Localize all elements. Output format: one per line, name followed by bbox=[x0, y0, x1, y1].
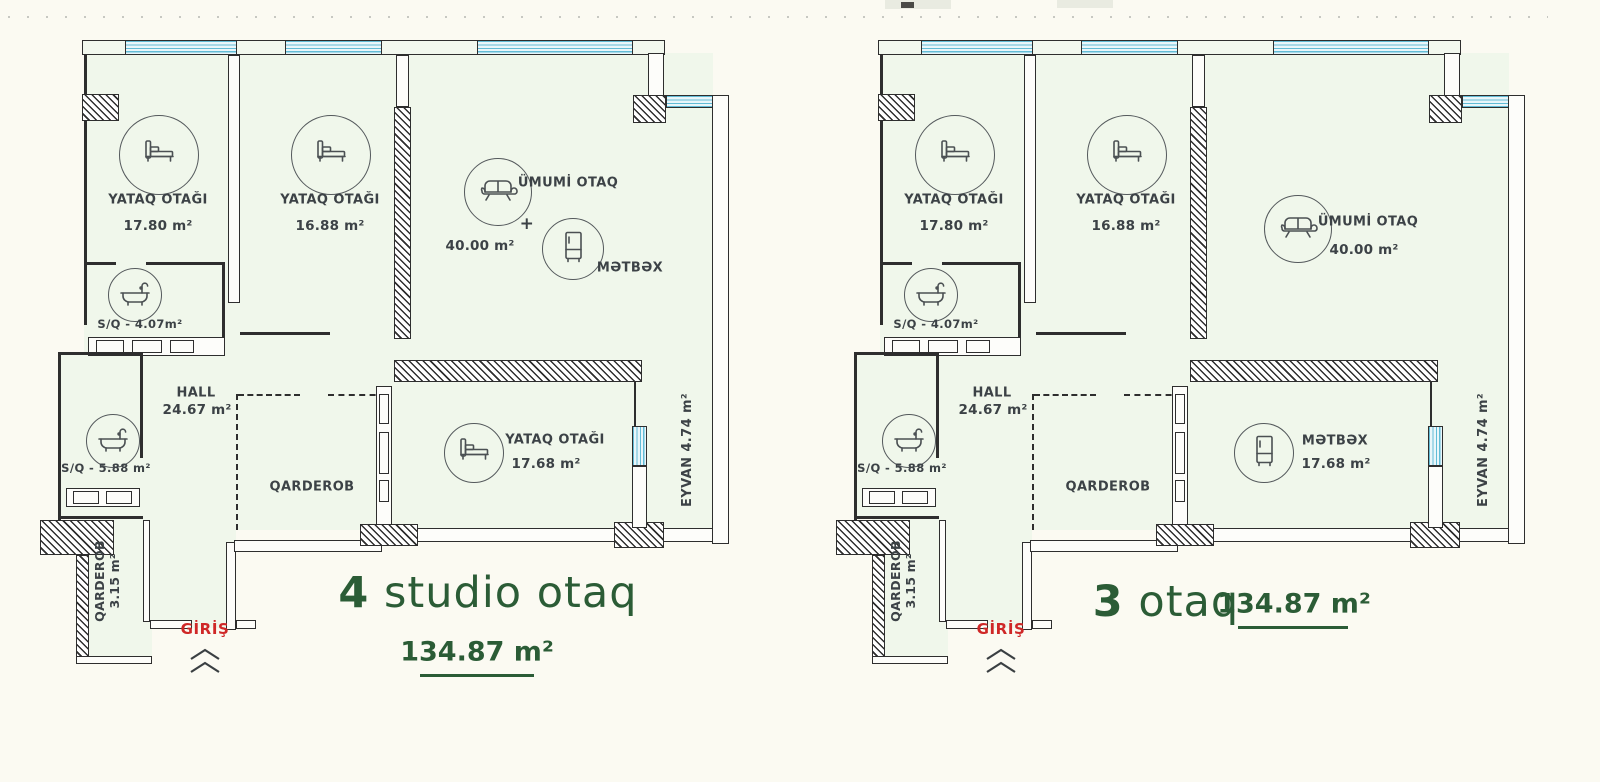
wall-line bbox=[146, 262, 225, 265]
fridge-icon bbox=[1234, 423, 1294, 483]
window bbox=[1428, 426, 1443, 466]
wall bbox=[1428, 466, 1443, 528]
balcony-label: EYVAN 4.74 m² bbox=[1476, 375, 1496, 525]
bath-label: S/Q - 4.07m² bbox=[893, 317, 978, 331]
room-name: YATAQ OTAĞI bbox=[108, 193, 208, 208]
wall-post bbox=[381, 40, 478, 55]
bathtub-icon bbox=[882, 414, 936, 468]
room-name: ÜMUMİ OTAQ bbox=[1318, 215, 1418, 230]
hatched-wall bbox=[82, 94, 119, 121]
room-area: 16.88 m² bbox=[296, 218, 365, 234]
wall-line bbox=[634, 382, 636, 426]
cabinet-drawer bbox=[869, 491, 895, 504]
wall bbox=[1032, 620, 1052, 629]
room-area: 40.00 m² bbox=[1330, 242, 1399, 258]
cabinet-drawer bbox=[928, 340, 958, 353]
hatched-wall bbox=[878, 94, 915, 121]
wall bbox=[396, 55, 409, 107]
room-area: 24.67 m² bbox=[163, 402, 232, 418]
shelf bbox=[379, 394, 389, 424]
room-area: 16.88 m² bbox=[1092, 218, 1161, 234]
balcony-label: EYVAN 4.74 m² bbox=[680, 375, 700, 525]
window bbox=[632, 426, 647, 466]
decor-block bbox=[1057, 0, 1113, 8]
wall-line bbox=[58, 516, 143, 519]
bed-icon bbox=[1087, 115, 1167, 195]
plus-sign: + bbox=[520, 214, 535, 234]
wardrobe-wing-label: QARDEROB 3.15 m² bbox=[92, 521, 136, 641]
shelf bbox=[379, 432, 389, 474]
window bbox=[878, 40, 1461, 55]
cabinet-drawer bbox=[902, 491, 928, 504]
wall bbox=[712, 95, 729, 544]
room-name: ÜMUMİ OTAQ bbox=[518, 176, 618, 191]
floor-plan-page: YATAQ OTAĞI 17.80 m² YATAQ OTAĞI 16.88 m… bbox=[0, 0, 1600, 782]
room-name: HALL bbox=[176, 386, 215, 401]
bathtub-icon bbox=[108, 268, 162, 322]
fridge-icon bbox=[542, 218, 604, 280]
shelf bbox=[1175, 480, 1185, 502]
wall bbox=[872, 656, 948, 664]
floor-plan-right: YATAQ OTAĞI 17.80 m² YATAQ OTAĞI 16.88 m… bbox=[836, 36, 1536, 696]
shelf bbox=[1175, 394, 1185, 424]
wall-line bbox=[936, 352, 939, 458]
bed-icon bbox=[915, 115, 995, 195]
wardrobe-label: QARDEROB bbox=[1066, 480, 1151, 495]
wall bbox=[939, 520, 946, 622]
cabinet-drawer bbox=[106, 491, 132, 504]
wall bbox=[76, 656, 152, 664]
window bbox=[1462, 95, 1509, 108]
window bbox=[666, 95, 713, 108]
cabinet-drawer bbox=[892, 340, 920, 353]
room-name: YATAQ OTAĞI bbox=[280, 193, 380, 208]
wall-line bbox=[86, 262, 116, 265]
room-area: 24.67 m² bbox=[959, 402, 1028, 418]
wardrobe-dashed-line bbox=[238, 394, 300, 396]
kitchen-label: MƏTBƏX bbox=[597, 261, 663, 276]
wardrobe-wing-label: QARDEROB 3.15 m² bbox=[888, 521, 932, 641]
wall-line bbox=[1036, 332, 1126, 335]
wardrobe-dashed-line bbox=[328, 394, 386, 396]
title-underline bbox=[420, 674, 534, 677]
room-area: 17.80 m² bbox=[920, 218, 989, 234]
wardrobe-dashed-line bbox=[1032, 394, 1034, 530]
cabinet-drawer bbox=[966, 340, 990, 353]
room-area: 17.68 m² bbox=[512, 456, 581, 472]
entrance-arrow-icon bbox=[981, 647, 1021, 679]
room-name: YATAQ OTAĞI bbox=[1076, 193, 1176, 208]
wardrobe-dashed-line bbox=[1034, 394, 1096, 396]
entrance-label: GİRİŞ bbox=[977, 620, 1026, 638]
cabinet-drawer bbox=[73, 491, 99, 504]
wardrobe-dashed-line bbox=[236, 394, 238, 530]
plan-title: 4 studio otaq bbox=[338, 568, 637, 618]
bathtub-icon bbox=[86, 414, 140, 468]
wardrobe-dashed-line bbox=[1124, 394, 1182, 396]
hatched-wall bbox=[76, 555, 89, 659]
wall-line bbox=[240, 332, 330, 335]
hatched-wall bbox=[633, 95, 666, 123]
plan-title-area: 134.87 m² bbox=[1217, 589, 1371, 620]
wall-line bbox=[854, 516, 939, 519]
wardrobe-label: QARDEROB bbox=[270, 480, 355, 495]
title-underline bbox=[1238, 626, 1348, 629]
wall bbox=[236, 620, 256, 629]
wall-line bbox=[140, 352, 143, 458]
plan-title-area: 134.87 m² bbox=[400, 637, 554, 668]
room-name: YATAQ OTAĞI bbox=[904, 193, 1004, 208]
shelf bbox=[379, 480, 389, 502]
hatched-wall bbox=[872, 555, 885, 659]
floor-area bbox=[150, 518, 236, 628]
bath-label: S/Q - 5.88 m² bbox=[857, 461, 947, 475]
dotted-grid-row bbox=[8, 16, 1548, 18]
wall bbox=[1508, 95, 1525, 544]
wall-line bbox=[854, 352, 857, 520]
hatched-wall bbox=[394, 360, 642, 382]
wall bbox=[1444, 53, 1460, 99]
wall bbox=[648, 53, 664, 99]
wall-line bbox=[882, 262, 912, 265]
room-area: 40.00 m² bbox=[446, 238, 515, 254]
wall-line bbox=[1430, 382, 1432, 426]
entrance-label: GİRİŞ bbox=[181, 620, 230, 638]
bed-icon bbox=[291, 115, 371, 195]
cabinet-drawer bbox=[170, 340, 194, 353]
wall bbox=[1192, 55, 1205, 107]
wall-line bbox=[58, 352, 61, 520]
room-name: HALL bbox=[972, 386, 1011, 401]
hatched-wall bbox=[1190, 360, 1438, 382]
wall bbox=[228, 55, 240, 303]
wall-post bbox=[82, 40, 126, 55]
cabinet-drawer bbox=[132, 340, 162, 353]
bathtub-icon bbox=[904, 268, 958, 322]
decor-mark bbox=[901, 2, 914, 8]
cabinet-drawer bbox=[96, 340, 124, 353]
wall bbox=[632, 466, 647, 528]
floor-plan-left: YATAQ OTAĞI 17.80 m² YATAQ OTAĞI 16.88 m… bbox=[40, 36, 740, 696]
bath-label: S/Q - 5.88 m² bbox=[61, 461, 151, 475]
decor-block bbox=[885, 0, 951, 9]
wall-post bbox=[236, 40, 286, 55]
bath-label: S/Q - 4.07m² bbox=[97, 317, 182, 331]
hatched-wall bbox=[1190, 107, 1207, 339]
hatched-wall bbox=[360, 524, 418, 546]
room-area: 17.80 m² bbox=[124, 218, 193, 234]
bed-icon bbox=[119, 115, 199, 195]
bed-icon bbox=[444, 423, 504, 483]
shelf bbox=[1175, 432, 1185, 474]
wall bbox=[1022, 542, 1032, 630]
wall-post bbox=[1177, 40, 1274, 55]
wall bbox=[226, 542, 236, 630]
wall-post bbox=[1032, 40, 1082, 55]
hatched-wall bbox=[1156, 524, 1214, 546]
wall-post bbox=[878, 40, 922, 55]
wall-line bbox=[942, 262, 1021, 265]
room-name: YATAQ OTAĞI bbox=[505, 433, 605, 448]
window bbox=[82, 40, 665, 55]
hatched-wall bbox=[1429, 95, 1462, 123]
hatched-wall bbox=[394, 107, 411, 339]
entrance-arrow-icon bbox=[185, 647, 225, 679]
room-name: MƏTBƏX bbox=[1302, 434, 1368, 449]
floor-area bbox=[946, 518, 1032, 628]
room-area: 17.68 m² bbox=[1302, 456, 1371, 472]
wall bbox=[1024, 55, 1036, 303]
wall bbox=[143, 520, 150, 622]
